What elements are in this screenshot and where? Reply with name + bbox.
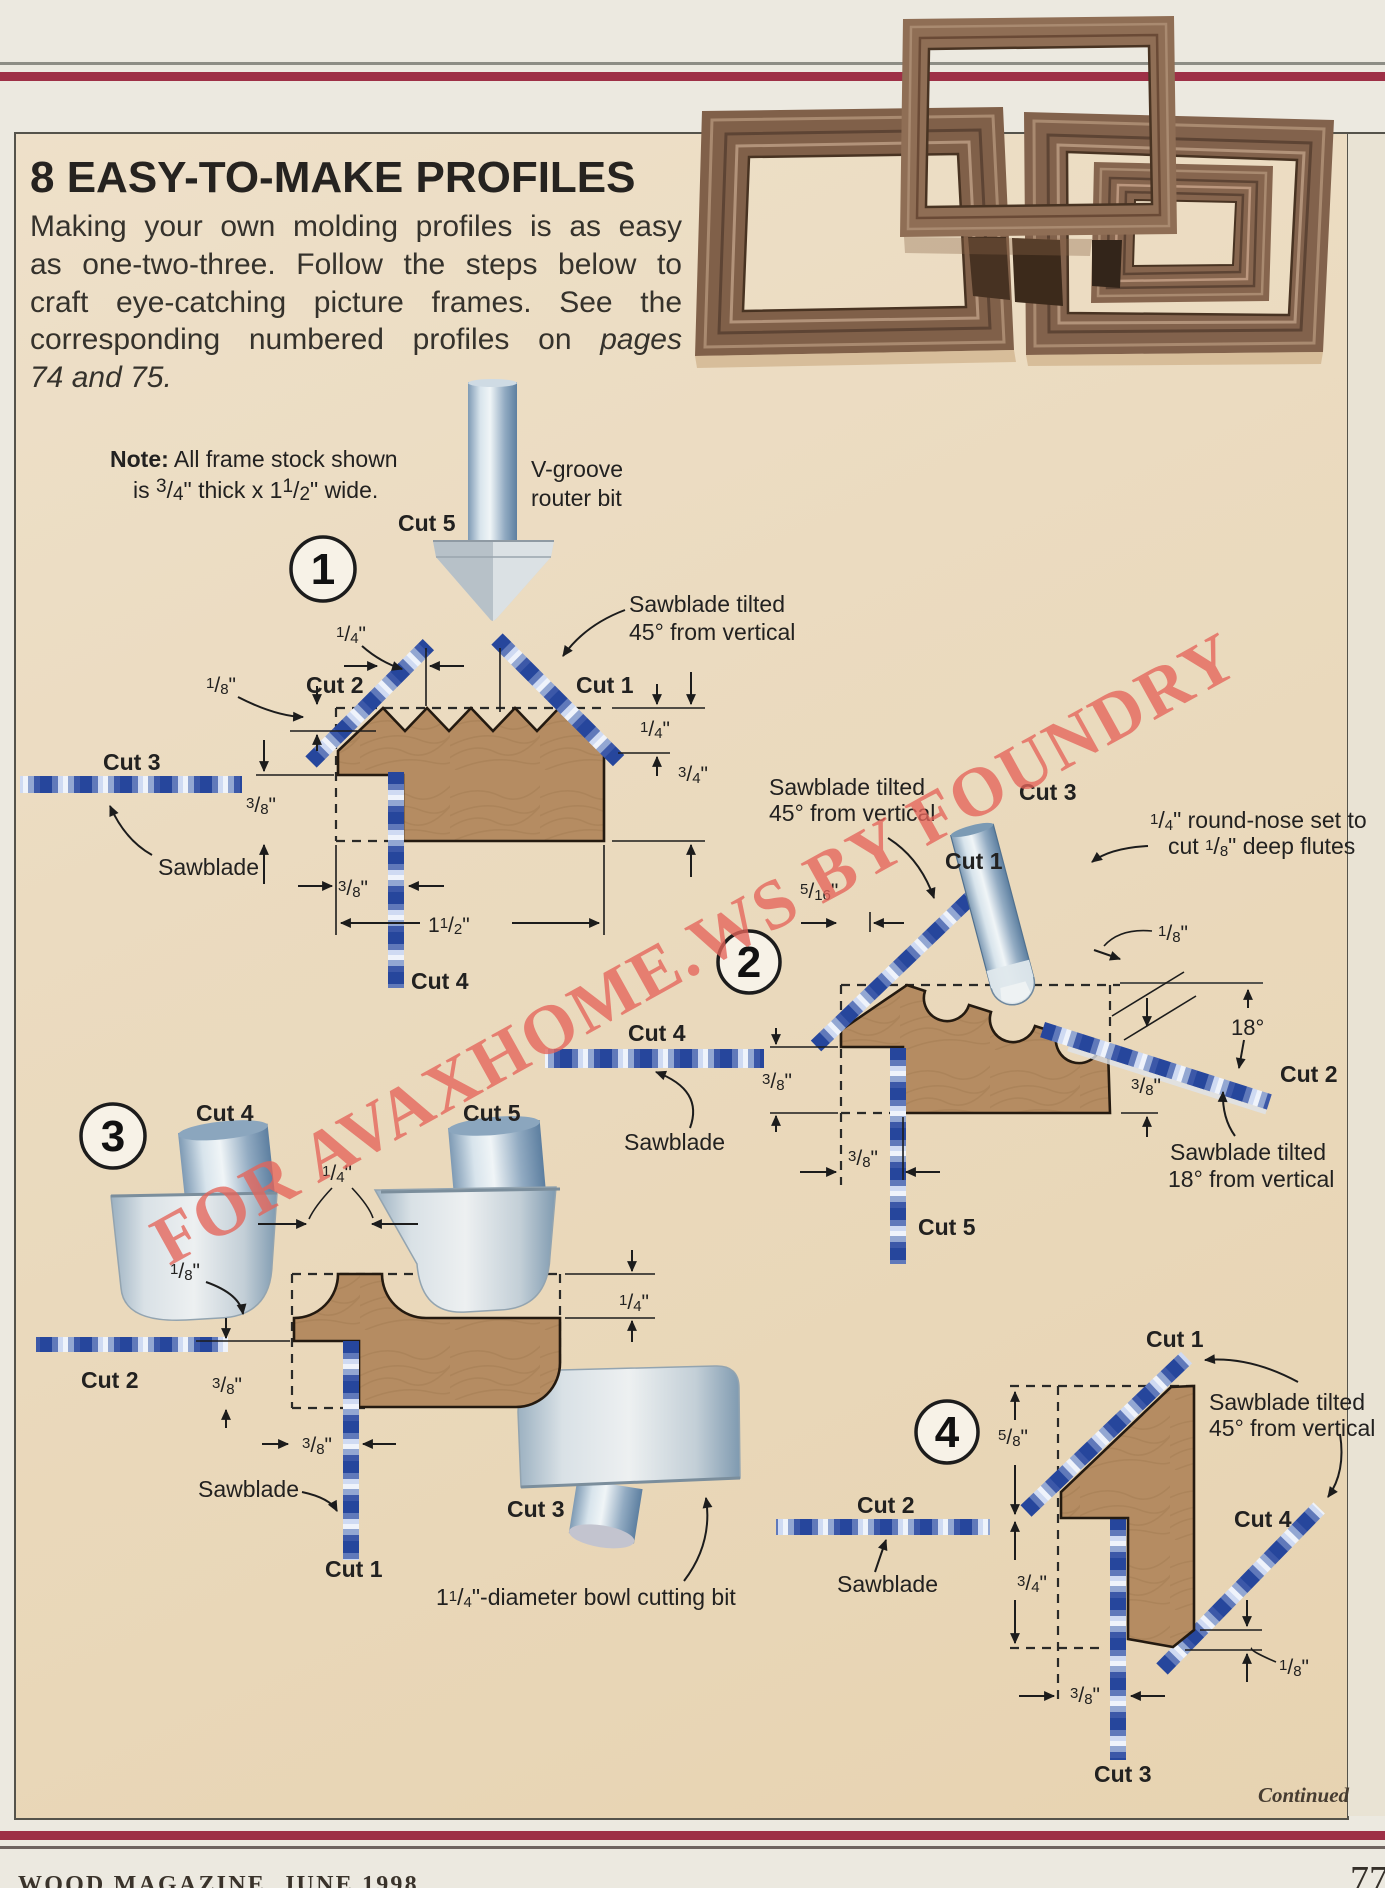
svg-text:router bit: router bit [531,485,622,511]
svg-text:3/8": 3/8" [1070,1684,1100,1708]
svg-text:Cut 1: Cut 1 [576,672,634,698]
svg-text:1/4": 1/4" [640,718,670,742]
svg-text:Cut 1: Cut 1 [325,1556,383,1582]
svg-text:11/4"-diameter bowl cutting bi: 11/4"-diameter bowl cutting bit [436,1584,736,1611]
svg-text:1/8": 1/8" [206,674,236,698]
svg-text:1: 1 [311,545,335,594]
svg-text:V-groove: V-groove [531,456,623,482]
svg-text:Cut 2: Cut 2 [857,1492,915,1518]
svg-text:1/8": 1/8" [1158,922,1188,946]
svg-text:45° from vertical: 45° from vertical [629,619,795,645]
svg-text:18°: 18° [1231,1015,1264,1040]
svg-text:is 3/4" thick x 11/2" wide.: is 3/4" thick x 11/2" wide. [133,476,378,505]
svg-text:Sawblade tilted: Sawblade tilted [1170,1139,1326,1165]
svg-text:3: 3 [101,1112,125,1161]
svg-text:3/8": 3/8" [246,794,276,818]
svg-text:Cut 3: Cut 3 [103,749,161,775]
svg-text:5/8": 5/8" [998,1426,1028,1450]
svg-text:Cut 3: Cut 3 [507,1496,565,1522]
svg-text:1/4": 1/4" [619,1291,649,1315]
svg-text:Cut 5: Cut 5 [918,1214,976,1240]
svg-text:3/8": 3/8" [212,1374,242,1398]
svg-text:1/4": 1/4" [336,623,366,647]
svg-text:Cut 4: Cut 4 [1234,1506,1292,1532]
svg-text:cut 1/8" deep flutes: cut 1/8" deep flutes [1168,833,1355,860]
svg-text:Cut 1: Cut 1 [1146,1326,1204,1352]
svg-text:Cut 5: Cut 5 [398,510,456,536]
svg-text:Sawblade: Sawblade [837,1571,938,1597]
svg-text:45° from vertical: 45° from vertical [1209,1415,1375,1441]
svg-text:18° from vertical: 18° from vertical [1168,1166,1334,1192]
svg-text:3/8": 3/8" [848,1147,878,1171]
svg-text:Sawblade tilted: Sawblade tilted [1209,1389,1365,1415]
svg-text:3/8": 3/8" [338,877,368,901]
svg-text:3/8": 3/8" [762,1070,792,1094]
svg-text:Sawblade: Sawblade [198,1476,299,1502]
svg-text:11/2": 11/2" [428,914,470,938]
svg-text:Sawblade: Sawblade [624,1129,725,1155]
svg-text:Note: All frame stock shown: Note: All frame stock shown [110,446,398,472]
svg-text:Sawblade tilted: Sawblade tilted [629,591,785,617]
svg-text:Sawblade: Sawblade [158,854,259,880]
svg-text:Cut 2: Cut 2 [1280,1061,1338,1087]
svg-text:3/8": 3/8" [302,1434,332,1458]
svg-text:Cut 2: Cut 2 [306,672,364,698]
svg-text:1/8": 1/8" [1279,1656,1309,1680]
svg-text:Cut 2: Cut 2 [81,1367,139,1393]
svg-text:1/4" round-nose set to: 1/4" round-nose set to [1150,807,1367,834]
svg-text:3/4": 3/4" [1017,1572,1047,1596]
svg-text:Cut 4: Cut 4 [411,968,469,994]
svg-text:Cut 4: Cut 4 [196,1100,254,1126]
svg-text:4: 4 [935,1408,960,1457]
svg-text:3/8": 3/8" [1131,1075,1161,1099]
svg-text:Cut 3: Cut 3 [1094,1761,1152,1787]
svg-text:3/4": 3/4" [678,763,708,787]
